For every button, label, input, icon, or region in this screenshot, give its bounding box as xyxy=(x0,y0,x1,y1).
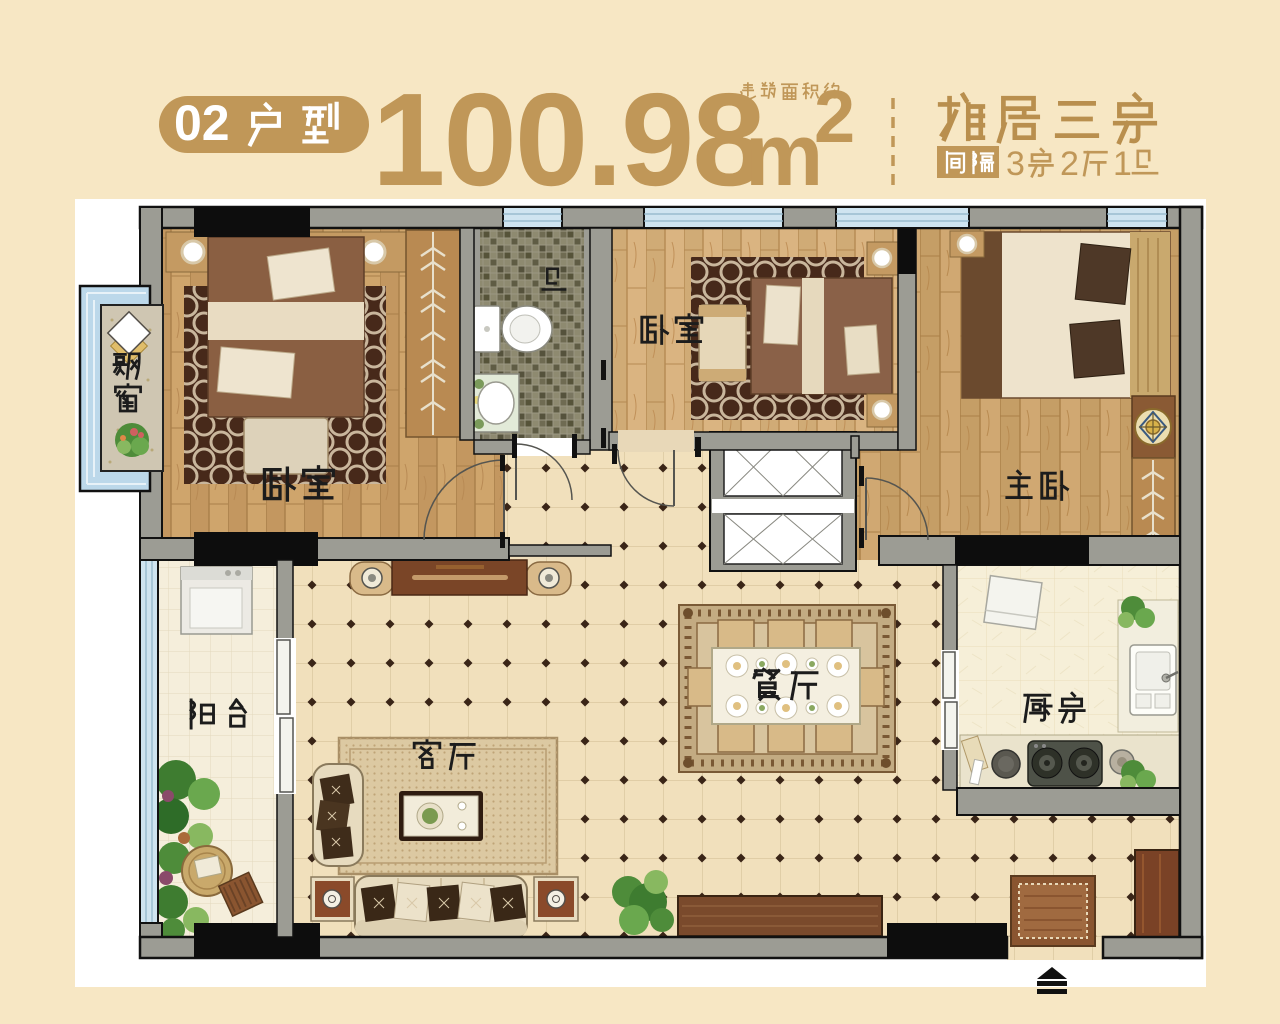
svg-text:2: 2 xyxy=(1060,145,1079,183)
svg-text:m: m xyxy=(745,105,823,204)
svg-text:02: 02 xyxy=(174,95,230,151)
svg-text:2: 2 xyxy=(814,75,855,158)
svg-text:100.98: 100.98 xyxy=(372,66,764,213)
svg-text:1: 1 xyxy=(1113,145,1132,183)
svg-text:3: 3 xyxy=(1006,145,1025,183)
